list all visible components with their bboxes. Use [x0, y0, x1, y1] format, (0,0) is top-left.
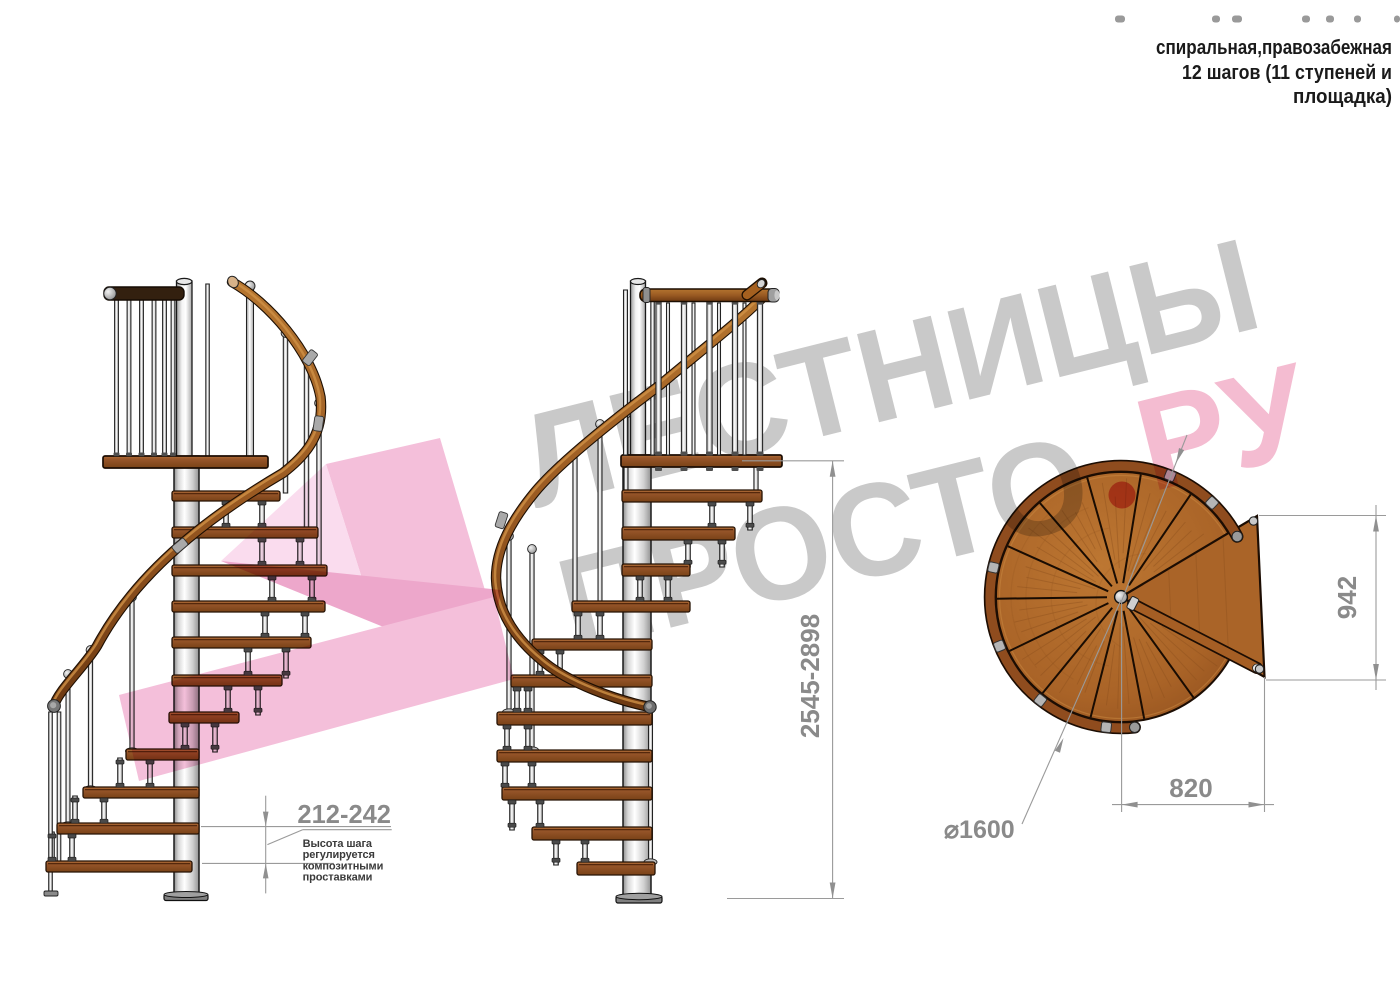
svg-text:⌀1600: ⌀1600: [944, 816, 1015, 844]
svg-text:942: 942: [1332, 576, 1362, 619]
svg-text:Высота шагарегулируетсякомпози: Высота шагарегулируетсякомпозитнымипрост…: [303, 838, 384, 884]
svg-text:2545-2898: 2545-2898: [795, 614, 825, 738]
svg-text:спиральная,правозабежная: спиральная,правозабежная: [1156, 36, 1392, 59]
svg-text:12 шагов (11 ступеней и: 12 шагов (11 ступеней и: [1182, 61, 1392, 84]
svg-text:820: 820: [1169, 773, 1212, 803]
svg-text:площадка): площадка): [1293, 85, 1392, 108]
svg-text:212-242: 212-242: [297, 801, 391, 829]
